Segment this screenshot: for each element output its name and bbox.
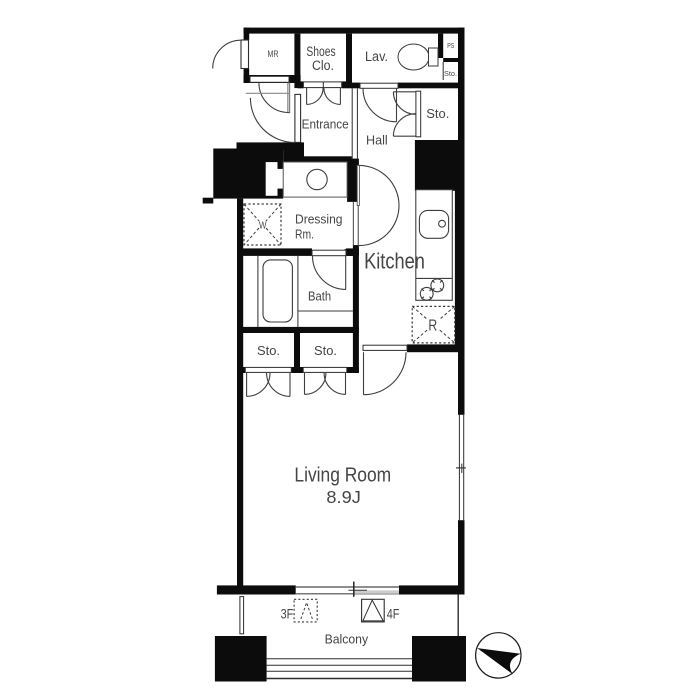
svg-text:Hall: Hall [366,132,388,147]
svg-text:MR: MR [268,49,279,59]
svg-text:3F: 3F [281,605,294,621]
svg-text:Lav.: Lav. [365,49,388,64]
svg-text:Sto.: Sto. [444,71,457,78]
svg-text:4F: 4F [387,605,400,621]
svg-text:Sto.: Sto. [426,106,449,121]
svg-text:Sto.: Sto. [314,343,337,358]
svg-text:Rm.: Rm. [295,226,314,241]
svg-text:W: W [259,220,267,232]
svg-text:8.9J: 8.9J [326,487,360,507]
svg-text:Sto.: Sto. [257,343,280,358]
svg-text:Entrance: Entrance [302,117,349,132]
svg-text:Bath: Bath [308,289,331,304]
svg-text:Shoes: Shoes [306,44,335,59]
svg-text:Kitchen: Kitchen [364,249,425,274]
svg-text:Living Room: Living Room [294,465,391,487]
svg-text:Dressing: Dressing [295,212,343,227]
svg-text:R: R [428,317,437,334]
svg-text:Clo.: Clo. [312,58,334,73]
svg-text:Balcony: Balcony [325,632,369,647]
svg-text:PS: PS [447,43,454,50]
